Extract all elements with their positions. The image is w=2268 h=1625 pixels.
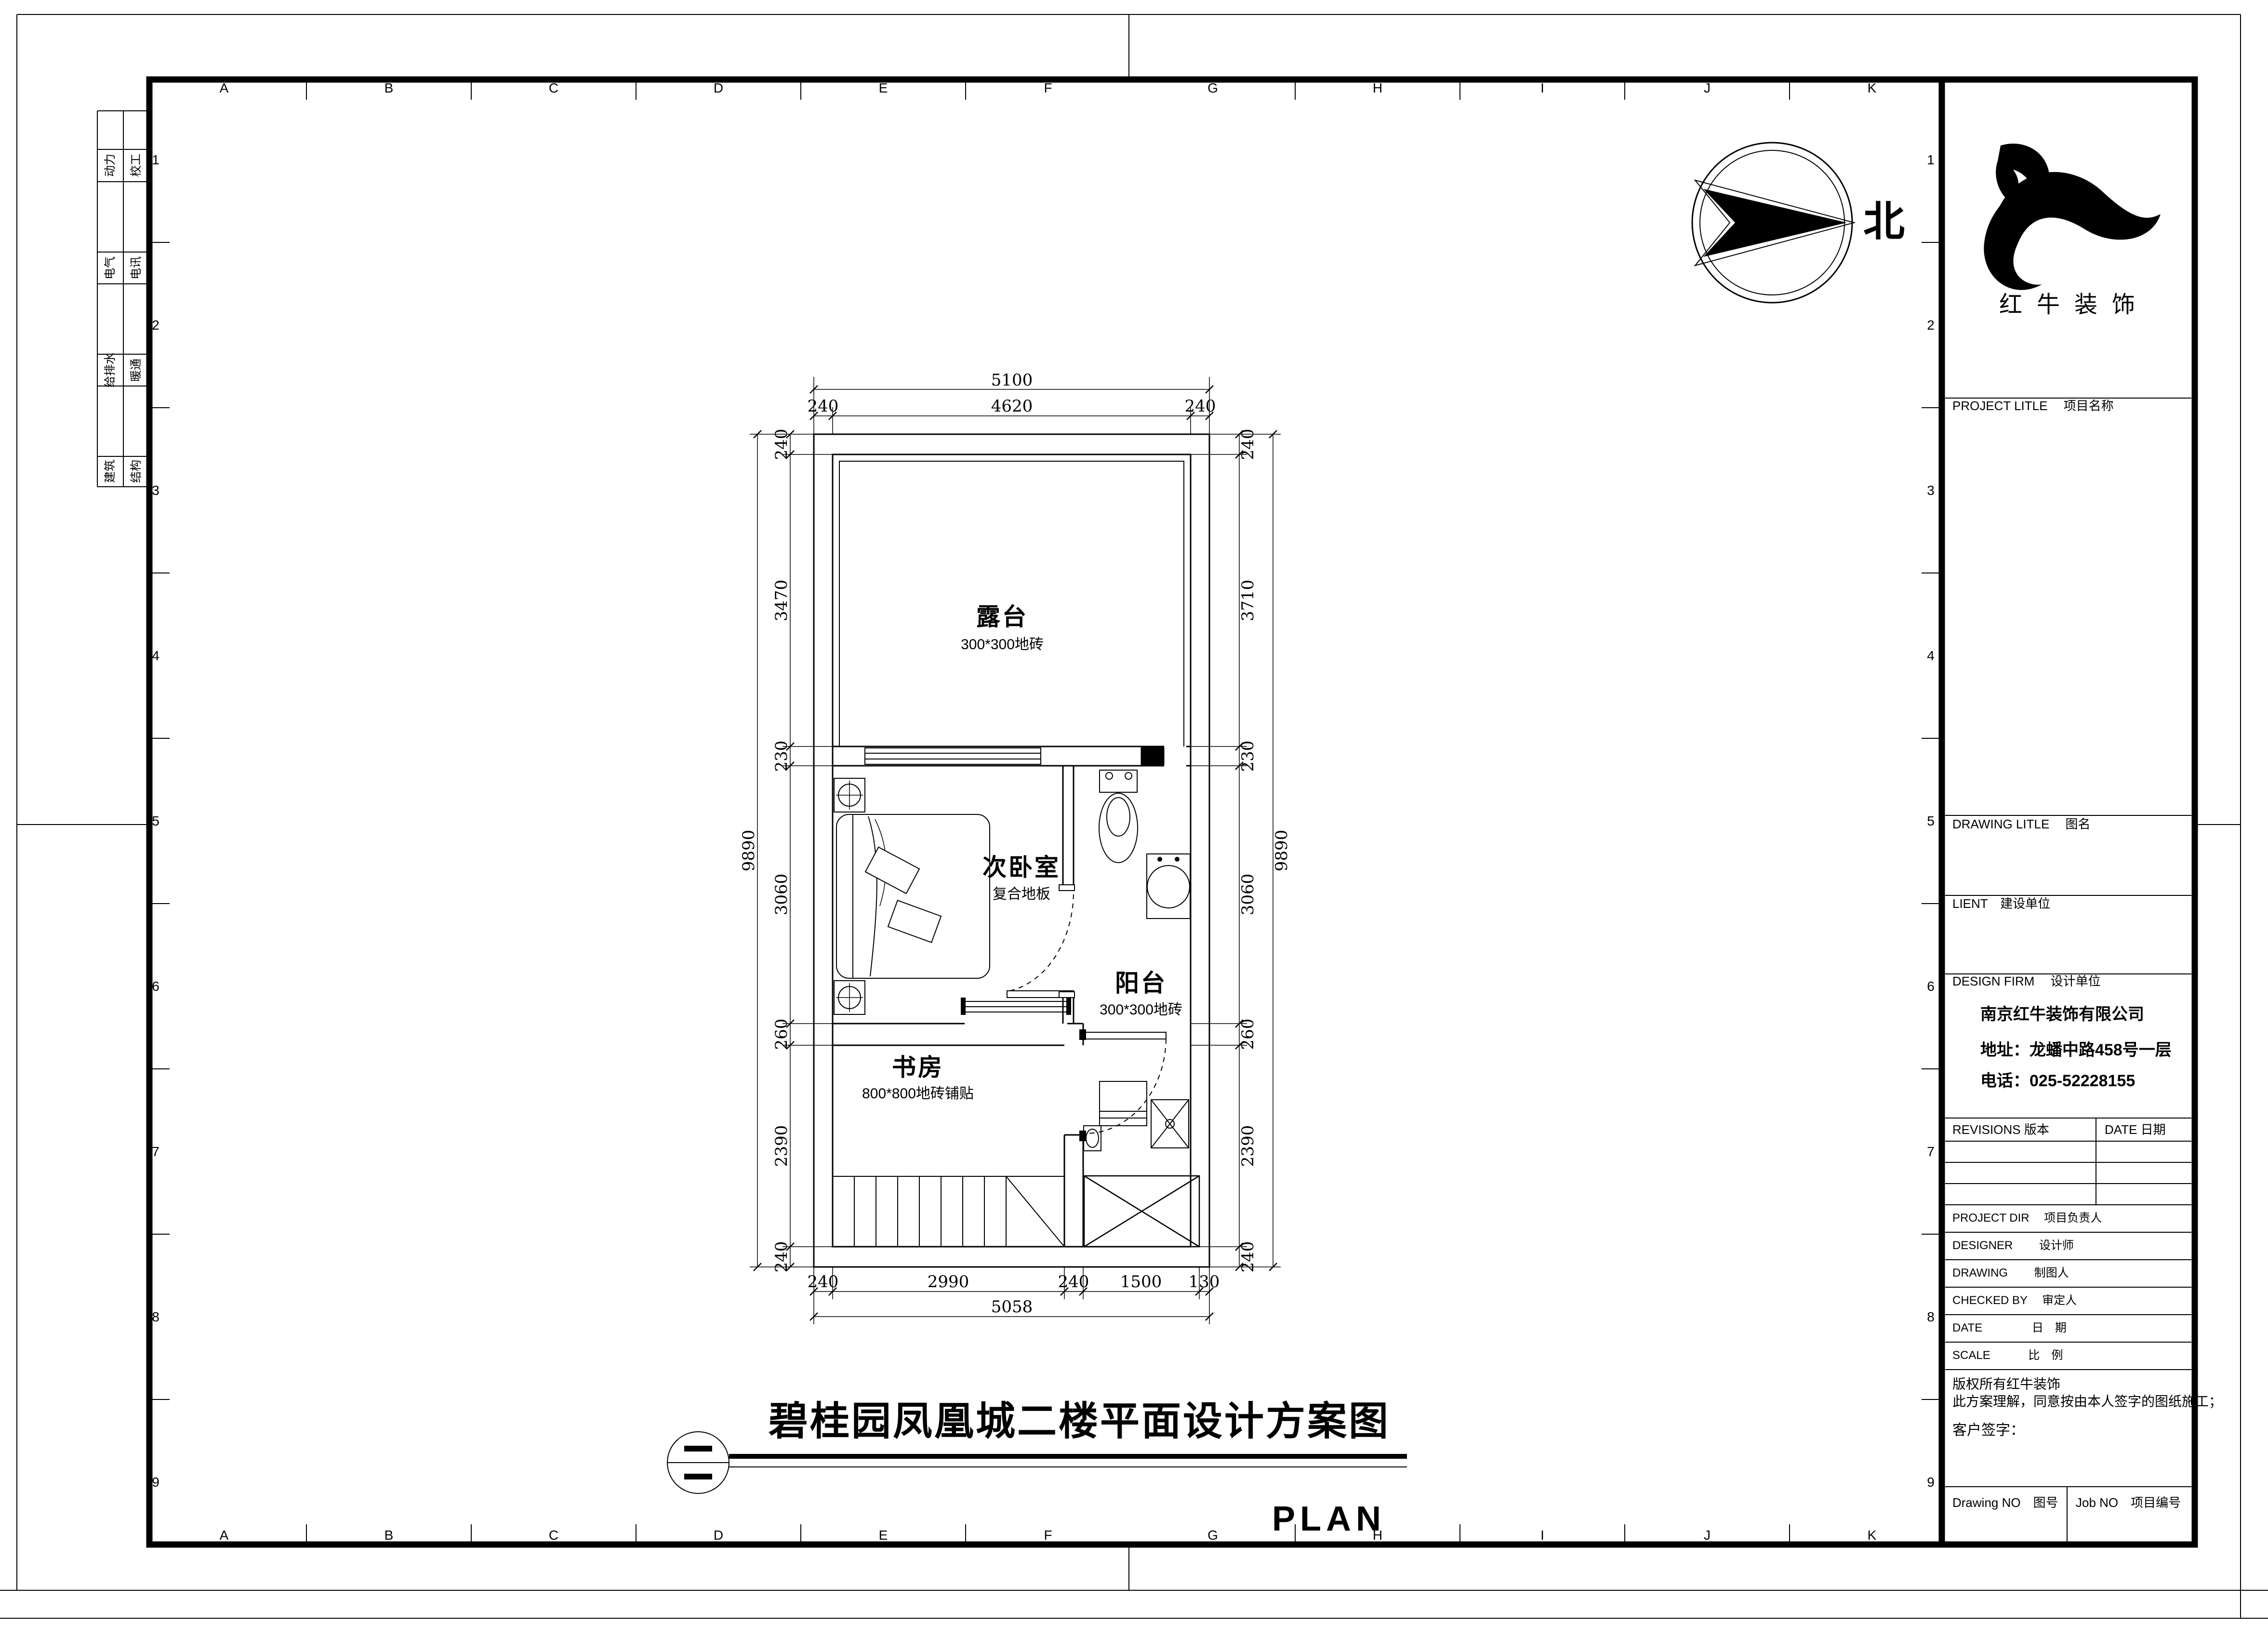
grid-number-right: 8 (1927, 1310, 1935, 1324)
discipline-label: 结构 (131, 460, 142, 483)
dimension-lines (750, 377, 1281, 1324)
dim-right-seg: 230 (1240, 741, 1256, 772)
linework-layer (0, 0, 2268, 1625)
discipline-label: 电气 (105, 256, 116, 280)
dim-right-seg: 260 (1240, 1019, 1256, 1050)
dim-right-seg: 240 (1240, 1241, 1256, 1273)
grid-letter-bottom: B (385, 1529, 394, 1542)
grid-number-right: 6 (1927, 980, 1935, 993)
discipline-label: 暖通 (131, 359, 142, 382)
job-no-label: Job NO 项目编号 (2076, 1495, 2181, 1511)
designer-label: DESIGNER 设计师 (1952, 1239, 2074, 1253)
sheet-subtitle: PLAN (1272, 1502, 1386, 1536)
grid-letter-bottom: E (879, 1529, 888, 1542)
grid-letter-bottom: I (1540, 1529, 1544, 1542)
north-arrow-icon (1692, 143, 1854, 303)
title-block-lines (1945, 398, 2191, 1545)
grid-letter-bottom: G (1207, 1529, 1218, 1542)
grid-letter-bottom: A (220, 1529, 229, 1542)
washing-machine-icon (1084, 1081, 1147, 1151)
grid-letter-top: C (549, 81, 558, 95)
room-name-balcony: 阳台 (1115, 971, 1167, 995)
dim-top-seg: 4620 (991, 398, 1033, 414)
drawing-no-label: Drawing NO 图号 (1952, 1495, 2058, 1511)
grid-letter-top: J (1704, 81, 1711, 95)
room-finish-balcony: 300*300地砖 (1100, 1003, 1182, 1017)
grid-number-left: 2 (152, 319, 159, 332)
room-name-terrace: 露台 (976, 605, 1028, 629)
balcony-door (1079, 1029, 1166, 1141)
discipline-label: 动力 (105, 154, 116, 177)
dim-bottom-seg: 2990 (928, 1274, 969, 1290)
grid-letter-bottom: D (714, 1529, 723, 1542)
dim-top-seg: 240 (1185, 398, 1216, 414)
dim-right-seg: 3710 (1240, 580, 1256, 622)
grid-number-left: 8 (152, 1310, 159, 1324)
dim-left-seg: 3060 (773, 874, 790, 916)
grid-number-left: 1 (152, 153, 159, 167)
grid-number-left: 5 (152, 814, 159, 828)
grid-number-right: 7 (1927, 1145, 1935, 1159)
drawing-sheet: A B C D E F G H I J K A B C D E F G H I … (0, 0, 2268, 1625)
dim-left-seg: 3470 (773, 580, 790, 622)
grid-number-right: 9 (1927, 1476, 1935, 1489)
grid-letter-bottom: K (1868, 1529, 1877, 1542)
room-finish-study: 800*800地砖铺贴 (862, 1087, 974, 1101)
project-title-label: PROJECT LITLE 项目名称 (1952, 398, 2114, 414)
grid-letter-bottom: F (1044, 1529, 1052, 1542)
terrace-window (865, 748, 1041, 764)
grid-number-right: 1 (1927, 153, 1935, 167)
dim-left-overall: 9890 (741, 830, 757, 872)
floor-plan-walls (814, 434, 1209, 1267)
copyright-line1: 版权所有红牛装饰 (1952, 1376, 2060, 1393)
grid-number-left: 6 (152, 980, 159, 993)
main-frame (149, 80, 2195, 1545)
dim-left-seg: 2390 (773, 1125, 790, 1167)
checked-by-label: CHECKED BY 审定人 (1952, 1293, 2077, 1308)
firm-name: 南京红牛装饰有限公司 (1980, 1004, 2144, 1025)
design-firm-label: DESIGN FIRM 设计单位 (1952, 973, 2101, 989)
nightstand-icon (834, 981, 865, 1014)
dim-bottom-seg: 240 (1058, 1274, 1089, 1290)
dim-bottom-seg: 240 (808, 1274, 839, 1290)
firm-address: 地址：龙蟠中路458号一层 (1980, 1040, 2172, 1061)
room-finish-bedroom: 复合地板 (993, 887, 1050, 902)
dim-left-seg: 240 (773, 1241, 790, 1273)
discipline-label: 给排水 (105, 353, 116, 387)
grid-letter-top: E (879, 81, 888, 95)
copyright-line2: 此方案理解，同意按由本人签字的图纸施工； (1952, 1393, 2222, 1410)
discipline-label: 校工 (131, 154, 142, 177)
grid-number-right: 3 (1927, 484, 1935, 497)
void-cross (1084, 1176, 1199, 1247)
client-label: LIENT 建设单位 (1952, 896, 2050, 912)
grid-letter-top: K (1868, 81, 1877, 95)
dim-right-overall: 9890 (1273, 830, 1290, 872)
grid-number-right: 5 (1927, 814, 1935, 828)
north-label: 北 (1863, 201, 1905, 242)
grid-reference-ticks (149, 80, 1942, 1545)
grid-number-right: 2 (1927, 319, 1935, 332)
grid-number-left: 3 (152, 484, 159, 497)
grid-letter-top: F (1044, 81, 1052, 95)
dim-left-seg: 240 (773, 429, 790, 460)
grid-letter-bottom: J (1704, 1529, 1711, 1542)
grid-number-left: 7 (152, 1145, 159, 1159)
dim-top-overall: 5100 (991, 372, 1033, 388)
scale-label: SCALE 比 例 (1952, 1348, 2063, 1363)
date-row-label: DATE 日 期 (1952, 1321, 2067, 1335)
dim-bottom-seg: 130 (1189, 1274, 1220, 1290)
dim-left-seg: 260 (773, 1019, 790, 1050)
drawing-title-label: DRAWING LITLE 图名 (1952, 816, 2091, 832)
dim-right-seg: 3060 (1240, 874, 1256, 916)
dim-right-seg: 2390 (1240, 1125, 1256, 1167)
discipline-label: 建筑 (105, 460, 116, 483)
firm-phone: 电话：025-52228155 (1980, 1071, 2135, 1092)
date-column-label: DATE 日期 (2105, 1122, 2166, 1138)
signature-label: 客户签字： (1952, 1421, 2025, 1439)
grid-number-left: 4 (152, 649, 159, 663)
drawing-by-label: DRAWING 制图人 (1952, 1266, 2069, 1280)
logo-text: 红牛装饰 (1999, 293, 2149, 316)
revisions-label: REVISIONS 版本 (1952, 1122, 2049, 1138)
sink-icon (1147, 854, 1190, 919)
room-name-bedroom: 次卧室 (982, 855, 1061, 879)
dim-bottom-seg: 1500 (1120, 1274, 1162, 1290)
grid-number-left: 9 (152, 1476, 159, 1489)
dim-bottom-overall: 5058 (991, 1299, 1033, 1315)
grid-letter-top: B (385, 81, 394, 95)
staircase (833, 1176, 1064, 1247)
grid-letter-top: H (1373, 81, 1382, 95)
toilet-icon (1099, 770, 1138, 863)
discipline-label: 电讯 (131, 256, 142, 280)
grid-letter-top: A (220, 81, 229, 95)
nightstand-icon (834, 778, 865, 812)
room-finish-terrace: 300*300地砖 (961, 638, 1044, 652)
grid-letter-top: G (1207, 81, 1218, 95)
balcony-window (961, 998, 1071, 1015)
bed-icon (836, 814, 990, 978)
bull-logo-icon (1984, 144, 2161, 290)
dim-right-seg: 240 (1240, 429, 1256, 460)
grid-letter-bottom: C (549, 1529, 558, 1542)
project-dir-label: PROJECT DIR 项目负责人 (1952, 1211, 2102, 1225)
dim-left-seg: 230 (773, 741, 790, 772)
grid-letter-top: I (1540, 81, 1544, 95)
dim-top-seg: 240 (808, 398, 839, 414)
sheet-title: 碧桂园凤凰城二楼平面设计方案图 (769, 1402, 1390, 1441)
grid-letter-top: D (714, 81, 723, 95)
room-name-study: 书房 (892, 1055, 944, 1079)
floor-drain-icon (1151, 1100, 1189, 1148)
grid-number-right: 4 (1927, 649, 1935, 663)
